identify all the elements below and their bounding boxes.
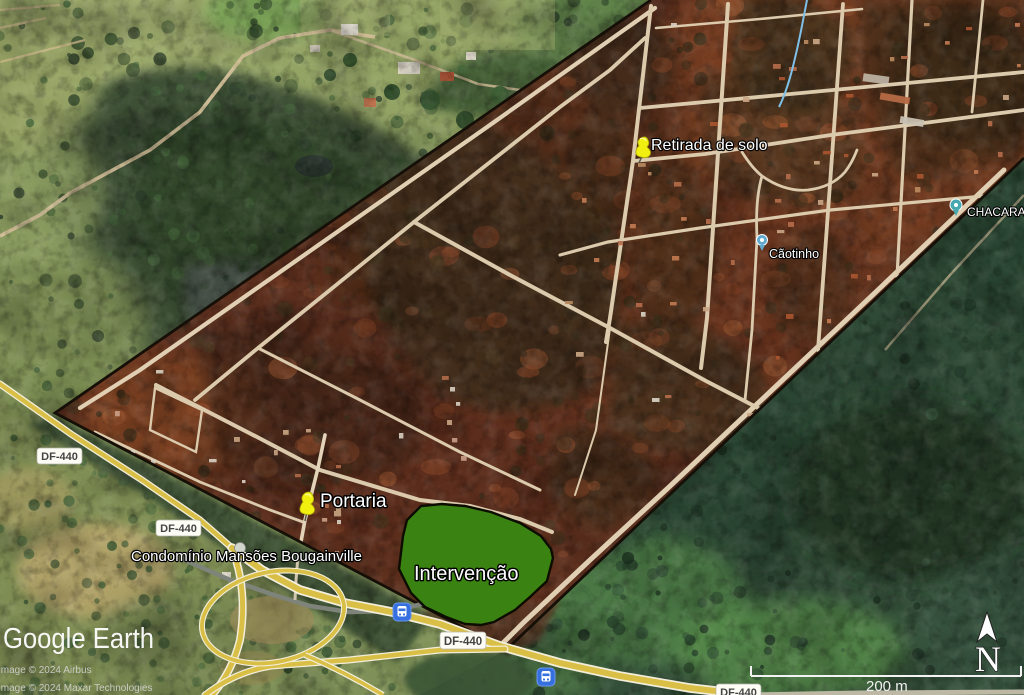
svg-text:CHACARA: CHACARA — [967, 205, 1024, 219]
svg-text:Image © 2024 Maxar Technologie: Image © 2024 Maxar Technologies — [0, 683, 153, 694]
svg-text:Condomínio Mansões Bougainvill: Condomínio Mansões Bougainville — [131, 548, 362, 565]
svg-text:Intervenção: Intervenção — [414, 563, 519, 585]
svg-text:DF-440: DF-440 — [720, 687, 757, 695]
svg-text:Portaria: Portaria — [320, 491, 387, 512]
svg-text:DF-440: DF-440 — [41, 451, 78, 463]
svg-text:Cãotinho: Cãotinho — [769, 247, 819, 261]
svg-text:N: N — [975, 639, 1001, 679]
svg-text:Image © 2024 Airbus: Image © 2024 Airbus — [0, 665, 92, 676]
svg-text:DF-440: DF-440 — [160, 523, 197, 535]
svg-text:DF-440: DF-440 — [444, 636, 482, 648]
svg-text:Retirada de solo: Retirada de solo — [651, 137, 768, 154]
svg-text:Google Earth: Google Earth — [3, 623, 154, 655]
svg-text:200 m: 200 m — [866, 678, 908, 695]
